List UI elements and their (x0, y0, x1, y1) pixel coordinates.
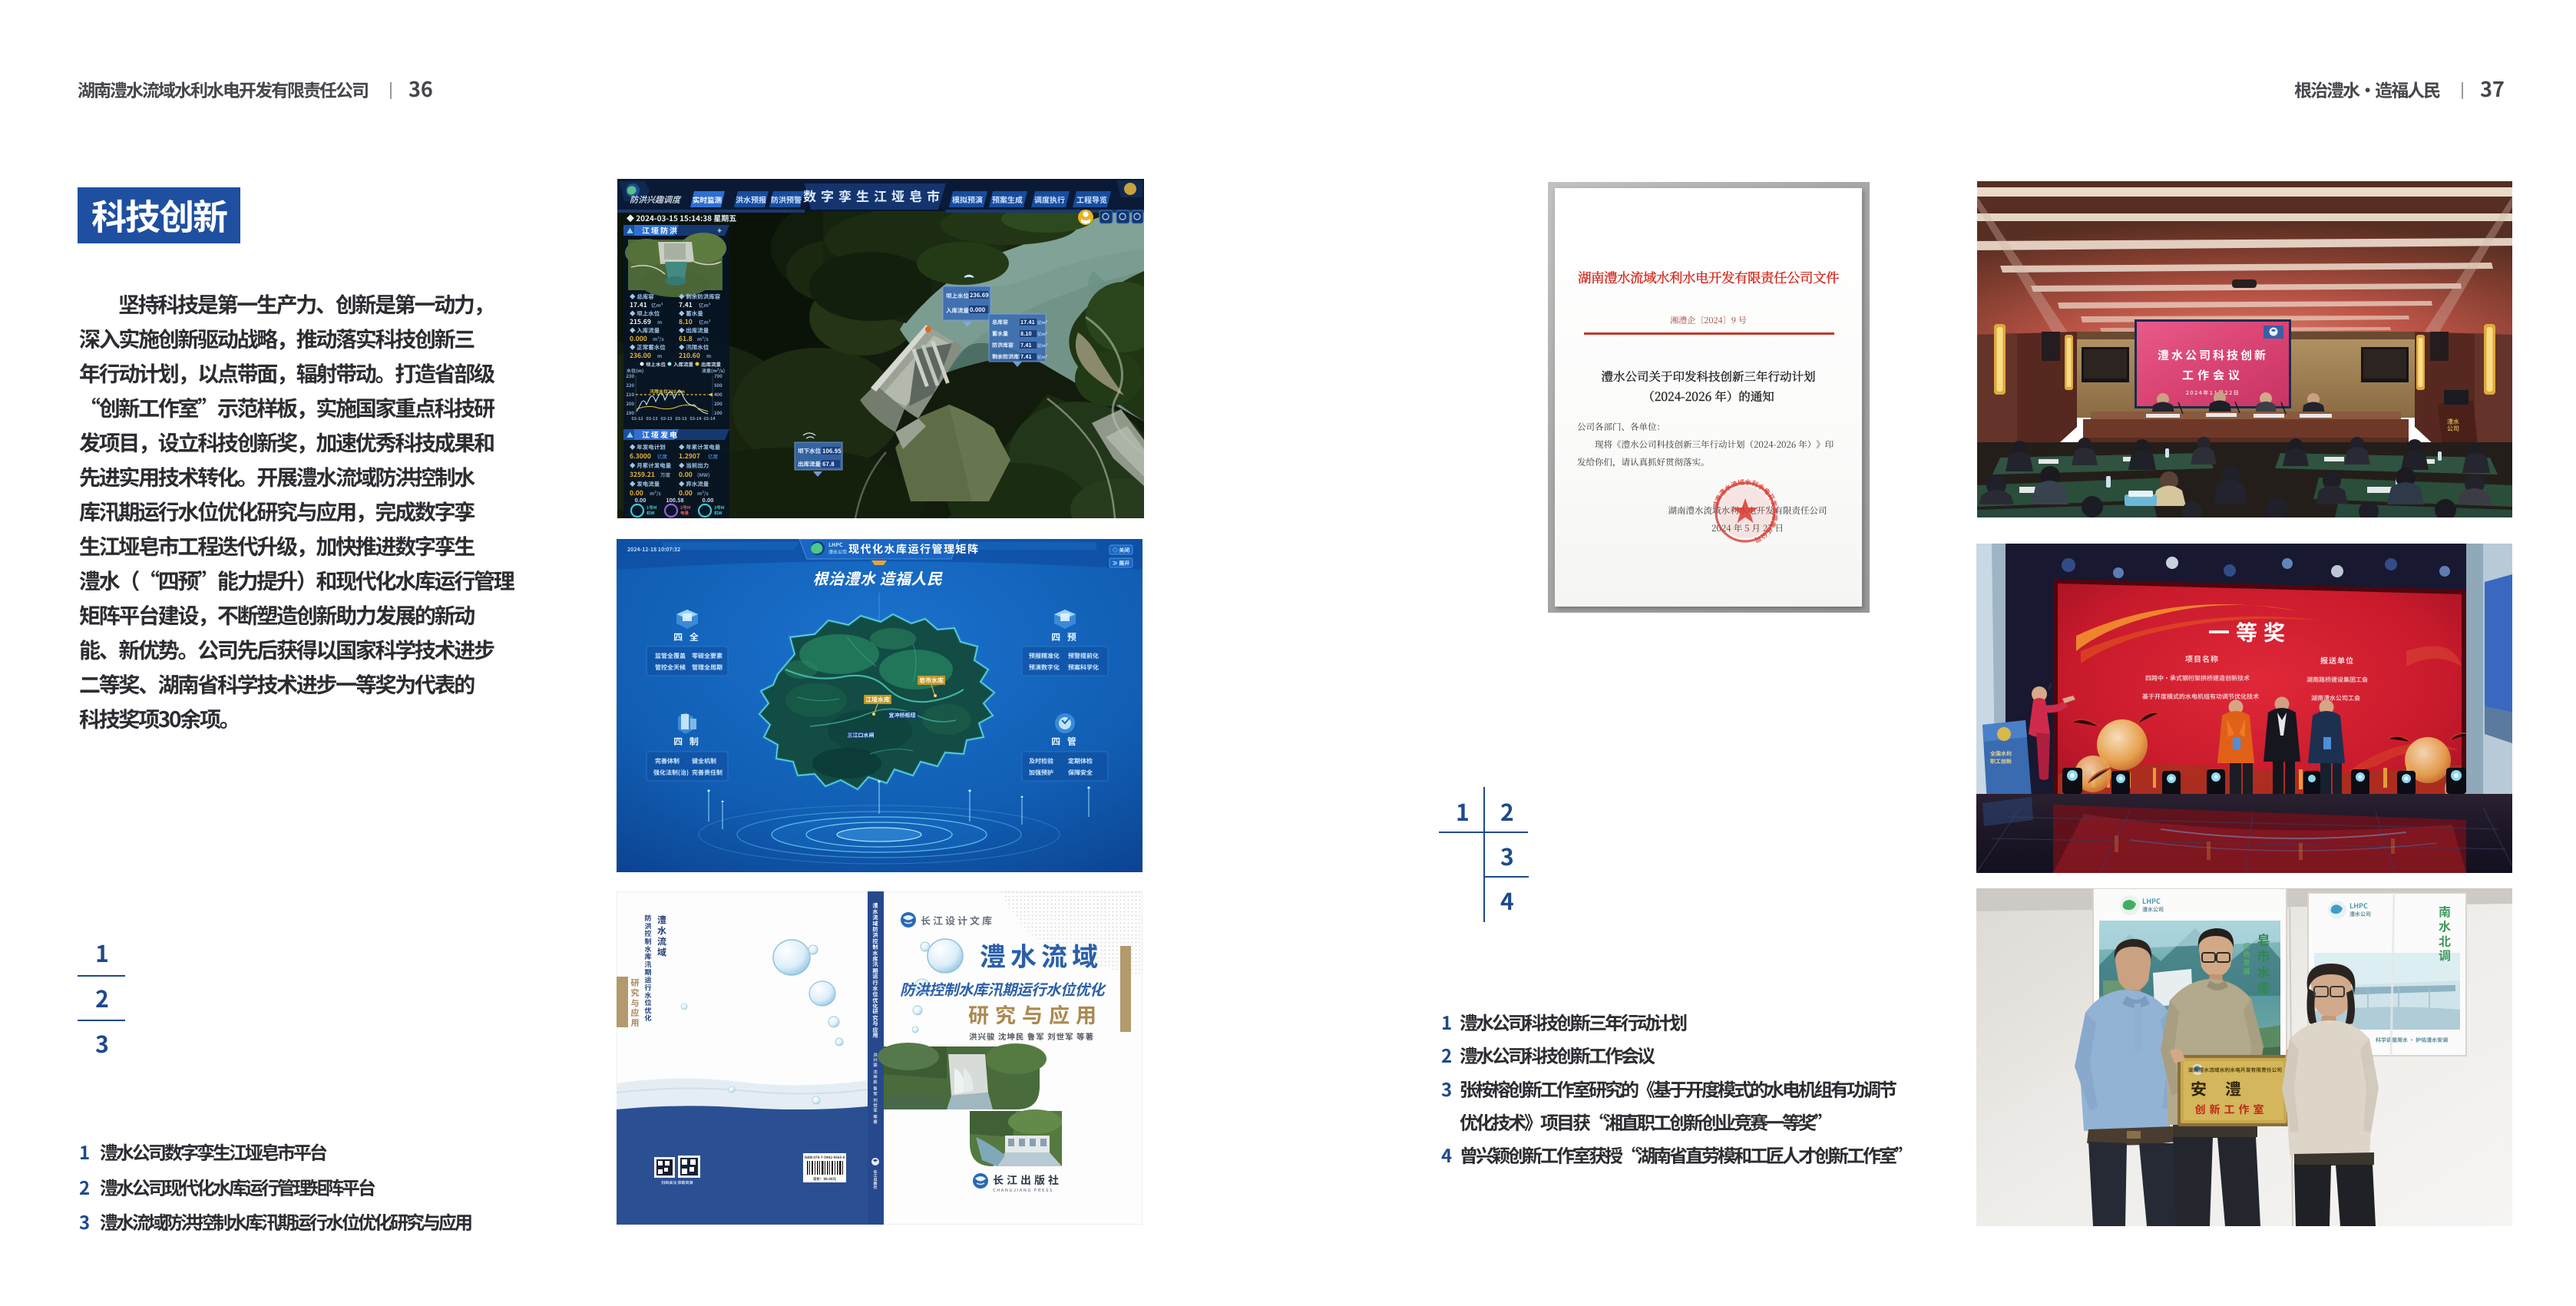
svg-text:湖南澧水流域水利水电开发有限责任公司: 湖南澧水流域水利水电开发有限责任公司 (2188, 1066, 2283, 1073)
svg-text:科学调度用水 · 护佑澧水安澜: 科学调度用水 · 护佑澧水安澜 (2376, 1037, 2448, 1044)
svg-text:LHPC: LHPC (2349, 901, 2368, 911)
svg-text:管控全天候: 管控全天候 (655, 663, 686, 672)
svg-text:加强预护: 加强预护 (1029, 769, 1053, 777)
svg-text:强化法制(治): 强化法制(治) (653, 769, 689, 777)
svg-text:万度: 万度 (660, 471, 671, 478)
svg-text:400: 400 (714, 391, 723, 398)
svg-text:m: m (657, 352, 662, 359)
svg-text:入库流量: 入库流量 (673, 360, 694, 368)
svg-text:◆ 弃水流量: ◆ 弃水流量 (679, 480, 709, 488)
svg-text:出库流量: 出库流量 (798, 460, 821, 468)
svg-text:电量: 电量 (680, 510, 689, 516)
svg-text:长江出版社: 长江出版社 (993, 1172, 1062, 1188)
svg-text:亿m³: 亿m³ (1037, 354, 1048, 360)
svg-text:210.60: 210.60 (679, 351, 700, 360)
svg-text:扫码关注 获取资源: 扫码关注 获取资源 (661, 1180, 693, 1185)
svg-text:03-12: 03-12 (631, 415, 643, 422)
svg-text:100: 100 (714, 409, 723, 416)
svg-text:澧水流域: 澧水流域 (980, 936, 1103, 974)
svg-text:03-14: 03-14 (703, 415, 716, 422)
svg-text:m: m (706, 352, 711, 359)
svg-text:亿度: 亿度 (708, 452, 719, 460)
svg-text:澧水公司: 澧水公司 (828, 548, 847, 555)
svg-text:防洪控制水库汛期运行水位优化: 防洪控制水库汛期运行水位优化 (900, 977, 1106, 1000)
svg-text:江垭防洪: 江垭防洪 (642, 224, 679, 236)
svg-text:保障安全: 保障安全 (1068, 769, 1093, 777)
svg-text:◆ 年发电计划: ◆ 年发电计划 (630, 443, 666, 451)
svg-text:四 制: 四 制 (673, 735, 701, 748)
svg-text:创新工作室: 创新工作室 (2195, 1102, 2268, 1117)
svg-text:▲: ▲ (627, 226, 633, 236)
svg-text:防洪库容: 防洪库容 (992, 342, 1014, 349)
svg-text:200: 200 (626, 400, 634, 407)
svg-text:106.95: 106.95 (822, 447, 842, 455)
svg-text:工程导览: 工程导览 (1076, 193, 1107, 205)
svg-text:亿m³: 亿m³ (1037, 319, 1048, 326)
svg-text:CHANGJIANG PRESS: CHANGJIANG PRESS (993, 1187, 1053, 1193)
svg-text:亿m³: 亿m³ (1037, 342, 1048, 349)
svg-text:定价：98.00元: 定价：98.00元 (813, 1177, 837, 1182)
svg-text:+: + (717, 224, 722, 236)
svg-text:预案科学化: 预案科学化 (1068, 663, 1099, 672)
svg-text:机W: 机W (714, 510, 723, 516)
svg-text:7.41: 7.41 (679, 300, 693, 309)
svg-text:亿m³: 亿m³ (1037, 331, 1048, 337)
svg-text:入库流量: 入库流量 (946, 306, 969, 315)
svg-text:长江出版社: 长江出版社 (873, 1169, 878, 1189)
svg-text:四 管: 四 管 (1051, 735, 1079, 748)
svg-text:ISBN 978-7-5492-9565-9: ISBN 978-7-5492-9565-9 (805, 1156, 845, 1160)
svg-text:700: 700 (714, 372, 723, 379)
svg-text:0.00: 0.00 (679, 470, 693, 479)
svg-text:四跨中·承式钢桁架拱桥建造创新技术: 四跨中·承式钢桁架拱桥建造创新技术 (2145, 674, 2250, 683)
svg-text:洪兴骏 沈坤民 鲁军 刘世军 等著: 洪兴骏 沈坤民 鲁军 刘世军 等著 (969, 1031, 1094, 1043)
svg-text:8.10: 8.10 (1020, 330, 1032, 338)
svg-text:210: 210 (626, 391, 634, 398)
svg-text:基于开度模式的水电机组有功调节优化技术: 基于开度模式的水电机组有功调节优化技术 (2142, 693, 2259, 701)
svg-text:17.41: 17.41 (630, 300, 647, 309)
svg-text:项目名称: 项目名称 (2185, 653, 2219, 664)
svg-text:亿度: 亿度 (657, 452, 668, 460)
svg-text:0.00: 0.00 (703, 497, 714, 504)
svg-text:8.10: 8.10 (679, 317, 693, 326)
svg-text:江垭发电: 江垭发电 (642, 428, 679, 440)
svg-text:▲: ▲ (627, 430, 633, 440)
svg-text:500: 500 (714, 382, 723, 388)
svg-text:江垭水库: 江垭水库 (865, 696, 890, 704)
svg-text:m: m (657, 318, 662, 326)
svg-text:坝上水位: 坝上水位 (646, 360, 666, 368)
svg-text:6.3000: 6.3000 (630, 451, 651, 461)
svg-text:绿色发展: 绿色发展 (2242, 942, 2252, 976)
svg-text:防洪预警: 防洪预警 (771, 193, 802, 205)
svg-text:湖南路桥建设集团工会: 湖南路桥建设集团工会 (2306, 676, 2368, 684)
svg-text:定期体检: 定期体检 (1068, 757, 1093, 765)
svg-text:三江口水闸: 三江口水闸 (848, 732, 875, 739)
svg-text:坝下水位: 坝下水位 (798, 447, 821, 455)
svg-text:湖南澧水公司工会: 湖南澧水公司工会 (2311, 694, 2360, 703)
svg-text:03-13: 03-13 (646, 415, 657, 422)
svg-text:236.69: 236.69 (970, 291, 989, 299)
svg-text:宜冲桥枢纽: 宜冲桥枢纽 (889, 712, 916, 719)
svg-text:0.000: 0.000 (970, 306, 986, 314)
svg-text:≫ 展开: ≫ 展开 (1113, 560, 1130, 567)
svg-text:03-14: 03-14 (689, 415, 702, 422)
svg-text:3259.21: 3259.21 (630, 470, 655, 479)
svg-text:机W: 机W (646, 510, 655, 516)
svg-text:实时监测: 实时监测 (693, 194, 722, 205)
svg-text:0.00: 0.00 (635, 497, 646, 504)
svg-text:现代化水库运行管理矩阵: 现代化水库运行管理矩阵 (848, 541, 980, 557)
svg-text:17.41: 17.41 (1020, 319, 1035, 326)
svg-text:研究与应用: 研究与应用 (629, 978, 641, 1028)
svg-text:亿m³: 亿m³ (699, 318, 711, 326)
svg-text:一等奖: 一等奖 (2208, 617, 2291, 647)
svg-text:亿m³: 亿m³ (651, 301, 663, 309)
svg-text:总库容: 总库容 (992, 319, 1008, 326)
svg-text:预警提前化: 预警提前化 (1068, 652, 1099, 660)
svg-text:健全机制: 健全机制 (692, 757, 716, 765)
svg-text:剩余防洪库容: 剩余防洪库容 (992, 353, 1024, 361)
svg-text:◆ 发电流量: ◆ 发电流量 (630, 480, 660, 488)
svg-text:LHPC: LHPC (2142, 896, 2161, 906)
svg-text:◆ 年累计发电量: ◆ 年累计发电量 (679, 443, 721, 451)
svg-text:安澧: 安澧 (2191, 1077, 2260, 1100)
svg-text:215.69: 215.69 (630, 317, 651, 326)
svg-text:m³/s: m³/s (697, 489, 709, 497)
svg-text:67.8: 67.8 (822, 460, 835, 468)
svg-text:防洪控制水库汛期运行水位优化: 防洪控制水库汛期运行水位优化 (643, 914, 653, 1022)
svg-text:7.41: 7.41 (1020, 353, 1032, 361)
svg-text:m³/s: m³/s (697, 335, 709, 342)
svg-text:03-13: 03-13 (675, 415, 686, 422)
svg-text:◆ 月累计发电量: ◆ 月累计发电量 (630, 461, 672, 470)
svg-text:全国水利: 全国水利 (1990, 750, 2012, 758)
svg-text:◆ 当前出力: ◆ 当前出力 (679, 461, 709, 470)
svg-text:职工创新: 职工创新 (1990, 758, 2012, 765)
svg-text:数字孪生江垭皂市: 数字孪生江垭皂市 (803, 186, 944, 205)
svg-text:236.00: 236.00 (630, 351, 651, 360)
svg-text:预报精准化: 预报精准化 (1029, 652, 1060, 660)
svg-text:澧水公司: 澧水公司 (2447, 418, 2459, 433)
svg-text:报送单位: 报送单位 (2320, 654, 2354, 666)
svg-text:220: 220 (626, 382, 634, 388)
svg-text:澧水流域: 澧水流域 (656, 914, 669, 957)
svg-text:完善责任制: 完善责任制 (692, 769, 723, 777)
svg-text:200: 200 (714, 400, 723, 407)
svg-text:03-13: 03-13 (660, 415, 672, 422)
svg-text:调度执行: 调度执行 (1034, 193, 1065, 205)
svg-text:◇ 关闭: ◇ 关闭 (1113, 547, 1130, 554)
svg-text:管理全周期: 管理全周期 (692, 663, 723, 672)
svg-text:2024年11月22日: 2024年11月22日 (2186, 389, 2240, 397)
svg-text:及时检验: 及时检验 (1029, 757, 1053, 765)
svg-text:1.2907: 1.2907 (679, 451, 700, 461)
svg-text:长江设计文库: 长江设计文库 (921, 913, 994, 927)
svg-text:澧水流域防洪控制水库汛期运行水位优化研究与应用: 澧水流域防洪控制水库汛期运行水位优化研究与应用 (871, 902, 879, 1038)
svg-text:澧水公司科技创新: 澧水公司科技创新 (2158, 347, 2268, 363)
svg-text:预案生成: 预案生成 (992, 193, 1023, 205)
svg-text:澧水公司: 澧水公司 (2349, 911, 2371, 918)
svg-text:研究与应用: 研究与应用 (968, 999, 1103, 1029)
svg-text:坝上水位: 坝上水位 (946, 292, 969, 300)
svg-text:0.000: 0.000 (630, 334, 647, 343)
svg-text:m³/s: m³/s (653, 335, 664, 342)
svg-text:◆ 2024-03-15 15:14:38 星期五: ◆ 2024-03-15 15:14:38 星期五 (627, 212, 736, 223)
svg-text:230: 230 (626, 372, 634, 379)
svg-text:四 全: 四 全 (673, 630, 701, 643)
svg-text:100.58: 100.58 (666, 497, 684, 504)
svg-text:皂市水库: 皂市水库 (2254, 933, 2273, 997)
svg-text:亿m³: 亿m³ (699, 301, 711, 309)
svg-text:防洪兴趣调度: 防洪兴趣调度 (630, 193, 682, 206)
svg-text:预演数字化: 预演数字化 (1029, 663, 1060, 672)
svg-text:2024-12-18 10:07:32: 2024-12-18 10:07:32 (627, 546, 680, 554)
svg-text:(MW): (MW) (697, 471, 709, 478)
svg-text:m³/s: m³/s (650, 489, 661, 497)
svg-text:工作会议: 工作会议 (2182, 367, 2244, 383)
svg-text:蓄水量: 蓄水量 (992, 330, 1008, 338)
svg-text:模拟预演: 模拟预演 (952, 193, 983, 205)
svg-text:完善体制: 完善体制 (655, 757, 680, 765)
svg-text:洪水预报: 洪水预报 (736, 193, 766, 205)
svg-text:皂市水库: 皂市水库 (919, 676, 944, 685)
svg-text:洪兴骏 沈坤民 鲁军 刘世军 等著: 洪兴骏 沈坤民 鲁军 刘世军 等著 (872, 1053, 878, 1125)
svg-text:7.41: 7.41 (1020, 342, 1032, 349)
svg-text:61.8: 61.8 (679, 334, 693, 343)
svg-text:澧水公司: 澧水公司 (2142, 906, 2164, 914)
svg-text:四 预: 四 预 (1051, 630, 1079, 643)
svg-text:零碳全要素: 零碳全要素 (692, 652, 723, 660)
svg-text:南水北调: 南水北调 (2435, 905, 2454, 964)
svg-text:监管全覆盖: 监管全覆盖 (655, 652, 686, 660)
svg-text:根治澧水 造福人民: 根治澧水 造福人民 (812, 567, 943, 589)
